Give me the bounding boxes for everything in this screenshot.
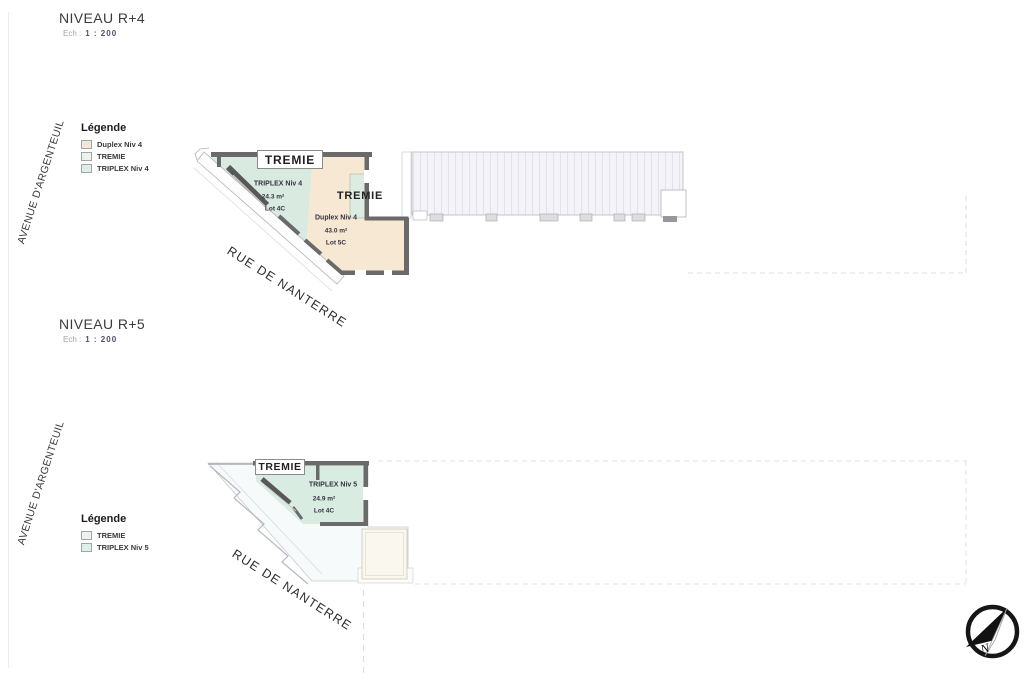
swatch-tremie [81,152,92,161]
r4-tremie-box-label: TREMIE [257,150,323,169]
legend-r4: Légende Duplex Niv 4 TREMIE TRIPLEX Niv … [81,122,149,176]
r5-tremie-box-label: TREMIE [255,459,305,475]
legend-item-label: Duplex Niv 4 [97,140,142,149]
swatch-triplex4 [81,164,92,173]
swatch-tremie [81,531,92,540]
r4-roof-end-tab [663,216,677,222]
legend-title: Légende [81,122,149,134]
r5-triplex-name: TRIPLEX Niv 5 [309,482,357,489]
r4-triplex-area: 24.3 m² [262,194,284,201]
scale-label: Ech : [63,29,81,38]
legend-item-label: TRIPLEX Niv 5 [97,543,149,552]
scale-note-r4: Ech :1 : 200 [63,29,117,38]
legend-item-duplex4: Duplex Niv 4 [81,140,149,149]
r4-triplex-lot: Lot 4C [265,206,285,213]
r5-triplex-lot: Lot 4C [314,508,334,515]
compass-icon [966,607,1017,656]
r4-roof-end-piece [661,190,686,217]
scale-value: 1 : 200 [85,29,117,38]
r4-roof-notch [413,211,427,220]
swatch-duplex4 [81,140,92,149]
section-title-r4: NIVEAU R+4 [59,10,145,26]
scale-note-r5: Ech :1 : 200 [63,335,117,344]
section-title-r5: NIVEAU R+5 [59,316,145,332]
r4-triplex-name: TRIPLEX Niv 4 [254,181,302,188]
swatch-triplex5 [81,543,92,552]
r5-triplex-area: 24.9 m² [313,496,335,503]
legend-item-label: TREMIE [97,152,125,161]
legend-item-triplex4: TRIPLEX Niv 4 [81,164,149,173]
plans-drawing [0,0,1024,679]
r5-property-dashes [378,461,966,584]
scale-value: 1 : 200 [85,335,117,344]
legend-title: Légende [81,513,149,525]
legend-item-tremie: TREMIE [81,152,149,161]
r4-property-dashes [688,196,966,273]
legend-item-label: TREMIE [97,531,125,540]
r5-annex-region [362,529,407,579]
r5-window-gap [363,487,369,500]
legend-r5: Légende TREMIE TRIPLEX Niv 5 [81,513,149,555]
r4-gap-strip [402,152,411,218]
r4-duplex-area: 43.0 m² [325,228,347,235]
legend-item-triplex5: TRIPLEX Niv 5 [81,543,149,552]
legend-item-tremie: TREMIE [81,531,149,540]
scale-label: Ech : [63,335,81,344]
r4-duplex-lot: Lot 5C [326,240,346,247]
legend-item-label: TRIPLEX Niv 4 [97,164,149,173]
page: NIVEAU R+4 Ech :1 : 200 AVENUE D'ARGENTE… [0,0,1024,679]
r4-tremie-inner-label: TREMIE [337,190,383,202]
r4-duplex-name: Duplex Niv 4 [315,215,357,222]
r4-roof-region [412,152,683,215]
